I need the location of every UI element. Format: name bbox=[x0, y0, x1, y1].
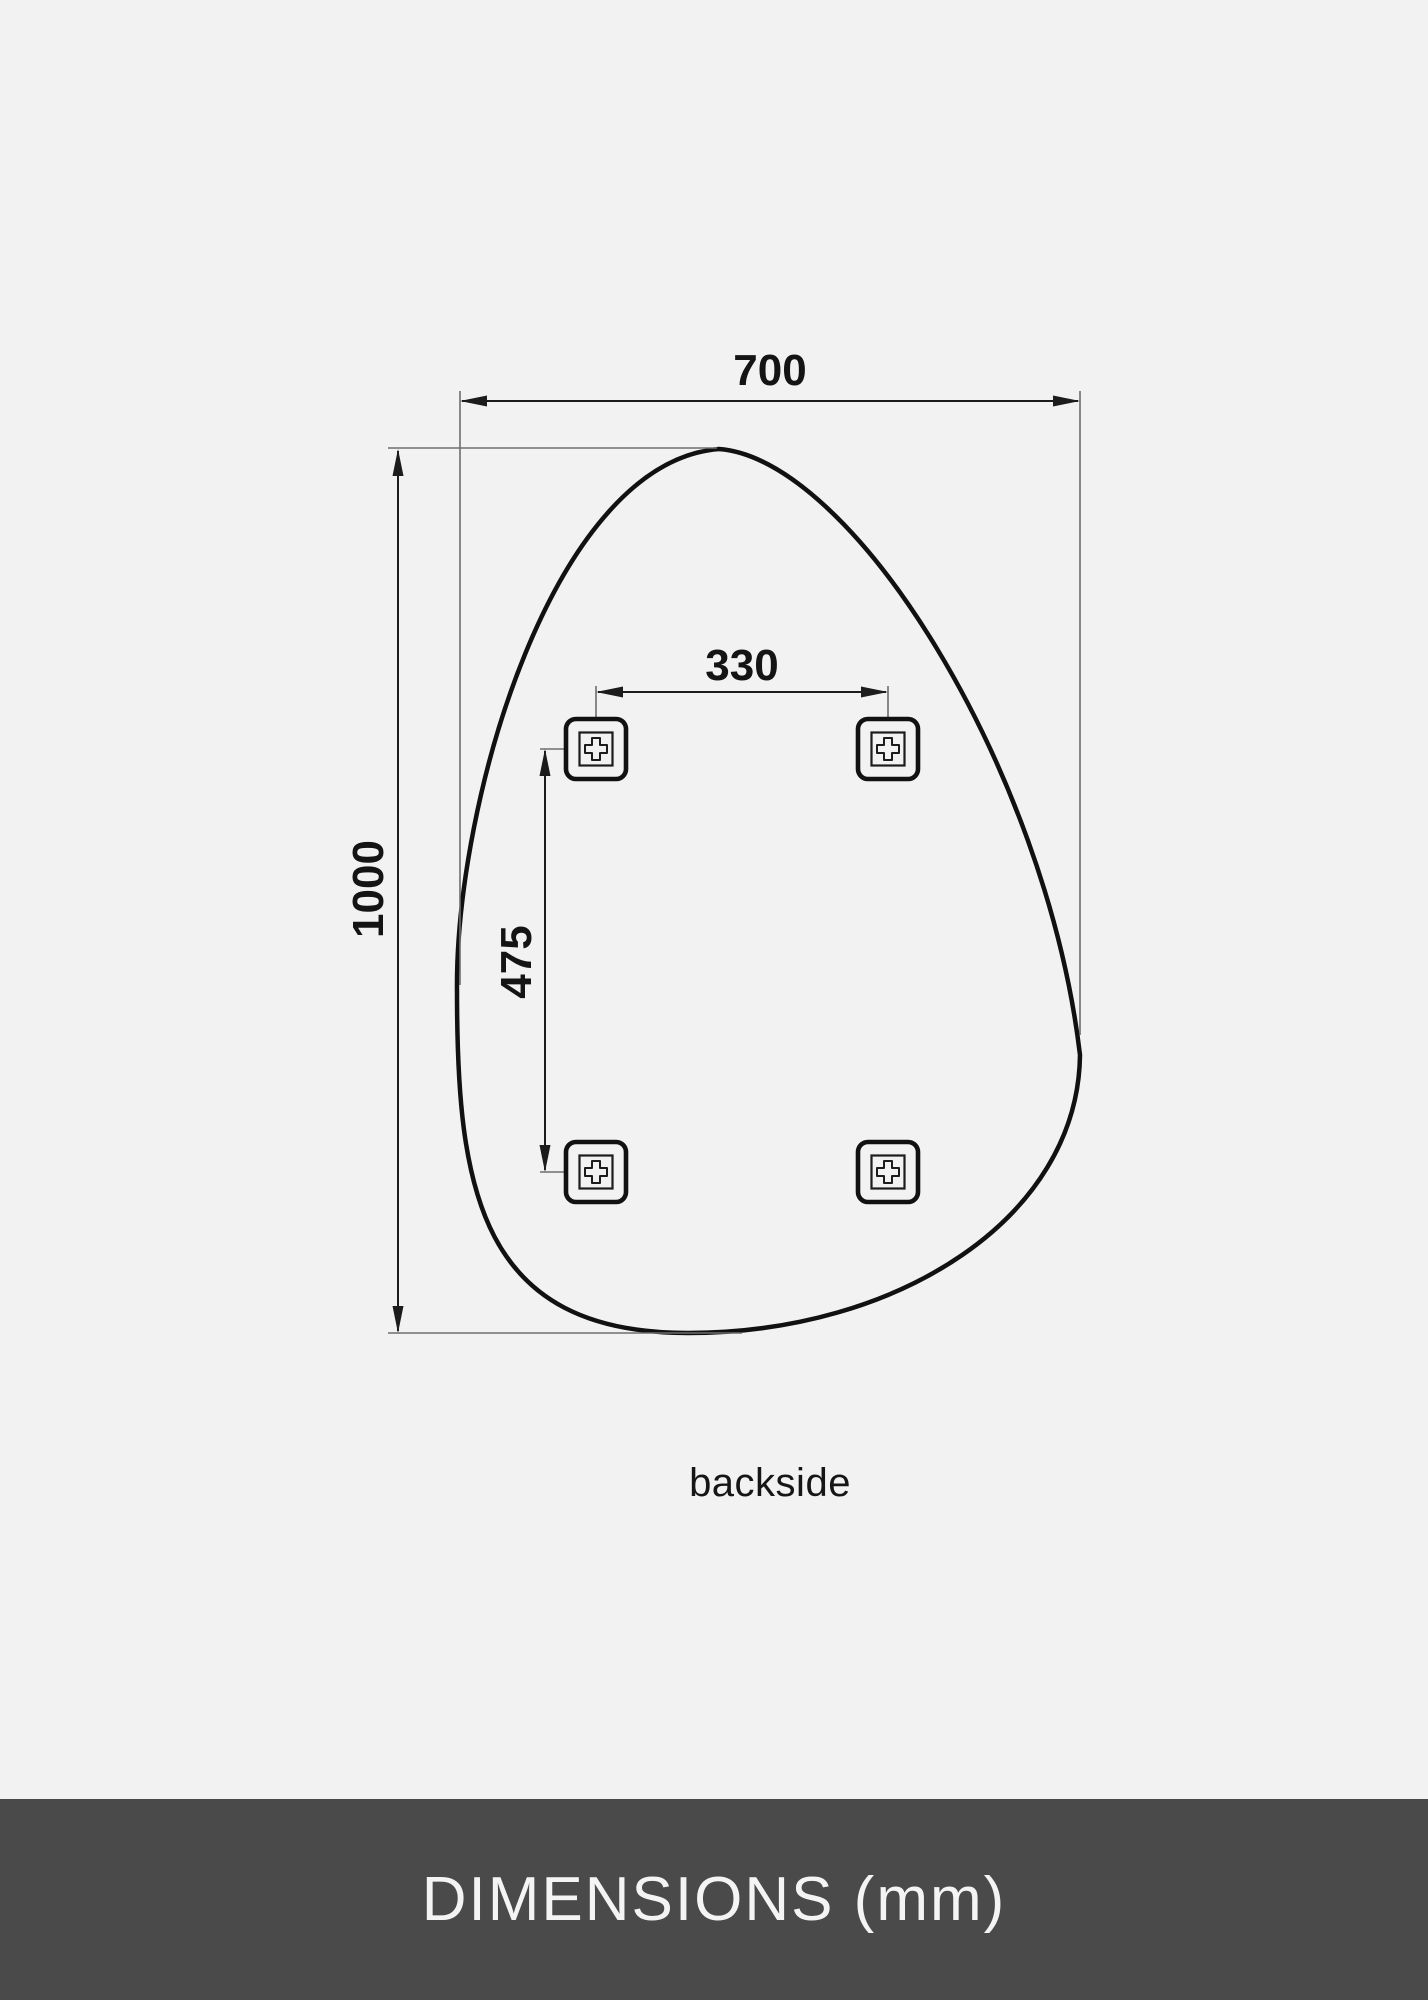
dimension-diagram: 700 1000 330 475 bbox=[0, 0, 1428, 1799]
bracket-outer-frame bbox=[566, 1142, 626, 1202]
bracket-spacing-horizontal-label: 330 bbox=[705, 641, 778, 690]
arrow-down-icon bbox=[540, 1145, 551, 1172]
dimension-sheet: 700 1000 330 475 bbox=[0, 0, 1428, 2000]
width-dimension-label: 700 bbox=[733, 346, 806, 395]
width-dimension: 700 bbox=[460, 346, 1080, 407]
arrow-down-icon bbox=[393, 1306, 404, 1333]
bracket-spacing-vertical-label: 475 bbox=[492, 925, 541, 998]
footer-bar: DIMENSIONS (mm) bbox=[0, 1799, 1428, 2000]
height-dimension-label: 1000 bbox=[344, 840, 393, 938]
footer-title: DIMENSIONS (mm) bbox=[422, 1864, 1007, 1935]
bracket-spacing-vertical-dimension: 475 bbox=[492, 749, 551, 1172]
bracket-outer-frame bbox=[858, 1142, 918, 1202]
mounting-brackets bbox=[566, 719, 918, 1202]
arrow-right-icon bbox=[1053, 396, 1080, 407]
mounting-bracket-bottom-right bbox=[858, 1142, 918, 1202]
arrow-up-icon bbox=[393, 449, 404, 476]
mounting-bracket-bottom-left bbox=[566, 1142, 626, 1202]
backside-label: backside bbox=[689, 1461, 851, 1505]
mirror-outline bbox=[457, 449, 1080, 1333]
mounting-bracket-top-left bbox=[566, 719, 626, 779]
extension-lines bbox=[388, 391, 1080, 1333]
height-dimension: 1000 bbox=[344, 449, 404, 1333]
arrow-left-icon bbox=[460, 396, 487, 407]
arrow-right-icon bbox=[861, 687, 888, 698]
bracket-outer-frame bbox=[566, 719, 626, 779]
mounting-bracket-top-right bbox=[858, 719, 918, 779]
bracket-outer-frame bbox=[858, 719, 918, 779]
bracket-spacing-horizontal-dimension: 330 bbox=[596, 641, 888, 698]
arrow-left-icon bbox=[596, 687, 623, 698]
arrow-up-icon bbox=[540, 749, 551, 776]
